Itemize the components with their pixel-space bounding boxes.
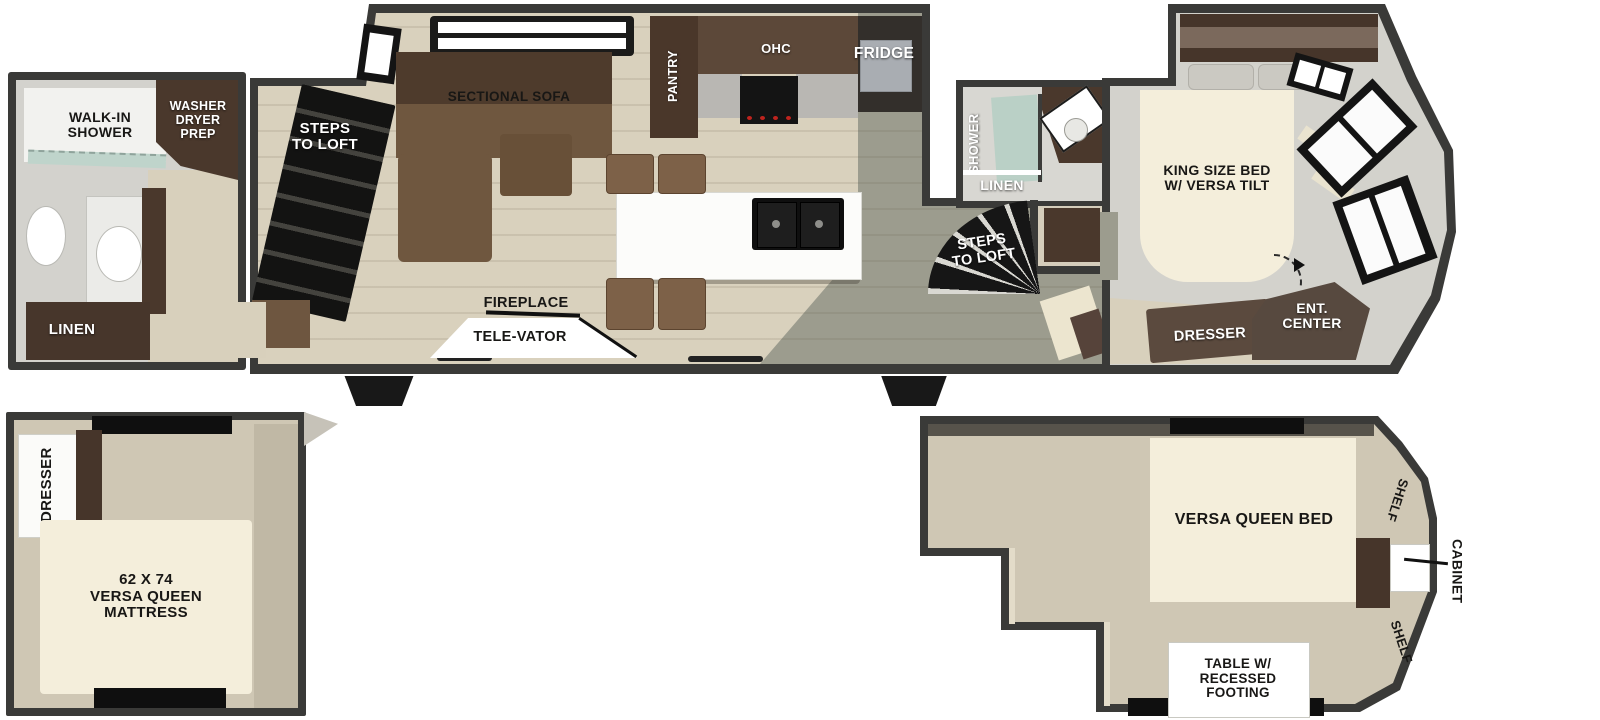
king-bed-label: KING SIZE BED W/ VERSA TILT — [1130, 158, 1304, 198]
fridge-label: FRIDGE — [844, 44, 924, 64]
toilet — [26, 206, 66, 266]
dining-chair — [658, 154, 706, 194]
dining-chair — [658, 278, 706, 330]
sink-drain — [815, 220, 823, 228]
door-sill-strip-2 — [688, 356, 763, 362]
mid-bath-divider — [963, 170, 1041, 175]
shower-rail — [1038, 94, 1042, 182]
skylight-slat — [438, 38, 626, 49]
bath-vanity-sink — [96, 226, 142, 282]
dining-chair — [606, 278, 654, 330]
kitchen-counter-left — [698, 74, 742, 118]
bath-ext-cabinet — [1044, 208, 1100, 262]
front-loft-cabinet-white — [1390, 544, 1430, 592]
mid-linen-label: LINEN — [963, 176, 1041, 196]
skylight — [430, 16, 634, 56]
stove-knob — [747, 116, 752, 120]
bedroom-wardrobe-shelf — [1180, 27, 1378, 48]
front-loft-table-label: TABLE W/ RECESSED FOOTING — [1172, 650, 1304, 708]
rear-loft-stair-opening-top — [92, 416, 232, 434]
rear-loft-mattress-label: 62 X 74 VERSA QUEEN MATTRESS — [60, 566, 232, 628]
front-loft-step-edge — [1009, 548, 1015, 624]
ohc-label: OHC — [736, 40, 816, 58]
rear-tall-cabinet — [142, 188, 166, 314]
stove-knob — [773, 116, 778, 120]
sink-drain — [772, 220, 780, 228]
living-window — [356, 24, 401, 85]
rear-steps-to-loft-label: STEPS TO LOFT — [252, 116, 398, 158]
ent-center-label: ENT. CENTER — [1266, 298, 1358, 334]
skylight-slat — [438, 22, 626, 33]
pantry-label: PANTRY — [650, 26, 698, 126]
island-sink — [752, 198, 844, 250]
pillow — [1188, 64, 1254, 90]
window-pane — [1319, 67, 1346, 94]
front-loft-top-band — [928, 424, 1374, 436]
entry-step — [338, 376, 420, 406]
kitchen-counter-right — [796, 74, 858, 118]
rear-loft-wall-band — [254, 424, 298, 708]
stove-knob — [786, 116, 791, 120]
rear-loft-stair-opening-bottom — [94, 688, 226, 708]
front-loft-cabinet-label: CABINET — [1446, 526, 1468, 616]
sectional-sofa-label: SECTIONAL SOFA — [424, 88, 594, 106]
sofa-chaise — [398, 154, 492, 262]
front-loft-bed-label: VERSA QUEEN BED — [1160, 510, 1348, 530]
front-loft-stair-opening-top — [1170, 418, 1304, 434]
entry-step — [875, 376, 953, 406]
walk-in-shower-label: WALK-IN SHOWER — [36, 104, 164, 146]
rear-loft-roof-bevel — [304, 412, 338, 446]
bedroom-doorway — [1100, 212, 1118, 280]
window-pane — [1294, 60, 1321, 87]
rv-floorplan-diagram: WALK-IN SHOWER WASHER DRYER PREP LINEN S… — [0, 0, 1600, 720]
dining-chair — [606, 154, 654, 194]
stove-knob — [760, 116, 765, 120]
front-loft-step-edge — [1104, 622, 1110, 706]
stove — [740, 76, 798, 124]
window-pane — [364, 33, 393, 76]
washer-dryer-prep-label: WASHER DRYER PREP — [160, 94, 236, 148]
televator-label: TELE-VATOR — [455, 328, 585, 348]
sofa-ottoman — [500, 134, 572, 196]
rear-linen-label: LINEN — [30, 318, 114, 342]
front-loft-cabinet-brown — [1356, 538, 1390, 608]
corner-sink — [1064, 118, 1088, 142]
bed-tilt-arrow — [1294, 258, 1305, 272]
rear-bath-doorway — [238, 302, 266, 358]
